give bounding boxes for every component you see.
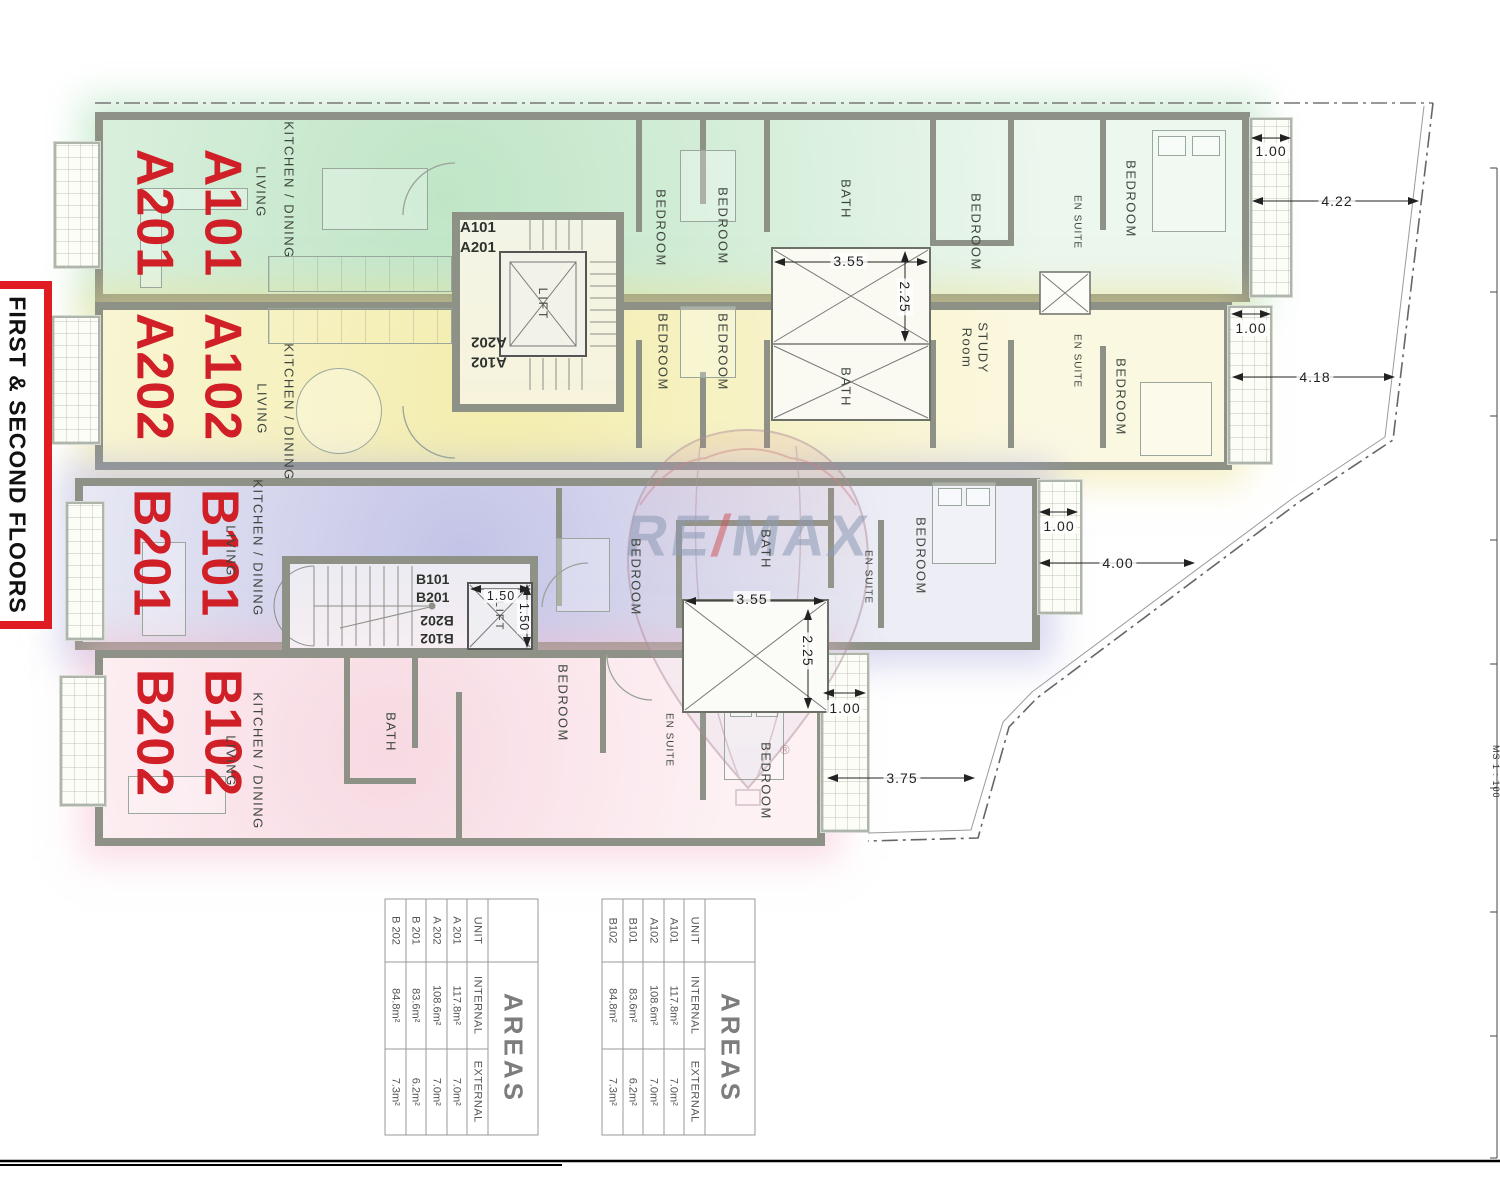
bed [1140,382,1212,456]
room-label: LIVING [224,735,239,787]
unit-b101: B101 [185,489,253,617]
col-header: INTERNAL [467,962,488,1049]
scale-note: MS 1 : 100 [1491,745,1500,799]
table-row: B101 83.6m² 6.2m² [623,899,644,1135]
room-label: EN SUITE [1072,195,1083,249]
room-label: BATH [759,529,774,569]
dim-yellow-balcony: 1.00 [1232,320,1269,336]
core-a-units-upper: A101 A201 [460,218,496,257]
cell-internal: 108.6m² [643,962,664,1049]
cell-external: 7.3m² [602,1049,623,1136]
areas-table-right: AREAS UNIT INTERNAL EXTERNAL A101 117.8m… [600,900,757,1137]
room-label: BATH [839,179,854,219]
table-row: A 201 117.8m² 7.0m² [447,899,468,1135]
kitchen-counter [268,256,452,292]
wall [344,778,416,784]
core-b-units-upper: B101 B201 [416,570,449,606]
floors-title: FIRST & SECOND FLOORS [4,296,31,613]
core-a-u1: A101 [460,218,496,238]
table-row: A102 108.6m² 7.0m² [643,899,664,1135]
unit-label-a101-a201: A101 A201 [120,149,255,277]
balcony-blue-right [1038,480,1082,614]
pillow [1192,136,1220,156]
wall [1100,120,1106,230]
dim-green-balcony: 1.00 [1252,143,1289,159]
room-label: LIVING [224,525,239,577]
wall [930,340,936,448]
core-b-l1: B102 [420,630,453,648]
room-label: LIVING [255,383,270,435]
study-line2: Room [958,322,974,374]
unit-a102: A102 [188,313,256,441]
core-b-u1: B101 [416,570,449,588]
cell-internal: 117.8m² [664,962,685,1049]
remax-watermark: RE/MAX [621,503,874,570]
room-label: BEDROOM [656,313,671,391]
room-label: BEDROOM [556,664,571,742]
lift-b-label: LIFT [493,601,505,632]
cell-unit: B 201 [406,899,427,962]
col-header: EXTERNAL [467,1049,488,1136]
wall [344,652,350,782]
remax-max: MAX [727,504,874,569]
wall [636,120,642,232]
room-label: EN SUITE [863,550,874,604]
pillow [730,700,752,717]
room-label: BEDROOM [759,742,774,820]
wall [412,652,418,748]
room-label: BEDROOM [969,193,984,271]
balcony-blue-left [66,502,104,640]
col-header: UNIT [467,899,488,962]
table-row: A101 117.8m² 7.0m² [664,899,685,1135]
room-label-study: STUDY Room [958,322,991,374]
room-label: BEDROOM [1124,160,1139,238]
table-row: B 202 84.8m² 7.3m² [385,899,406,1135]
cell-unit: A102 [643,899,664,962]
wall [700,372,706,448]
cell-external: 6.2m² [406,1049,427,1136]
wall [636,340,642,448]
col-header: UNIT [684,899,705,962]
cell-external: 7.0m² [426,1049,447,1136]
dining-table [322,168,428,230]
areas-table-left: AREAS UNIT INTERNAL EXTERNAL A 201 117.8… [383,900,540,1137]
room-label: BEDROOM [654,189,669,267]
cell-external: 7.0m² [447,1049,468,1136]
unit-b102: B102 [188,669,256,797]
cell-unit: A 202 [426,899,447,962]
unit-b202: B202 [120,669,188,797]
dim-pink-balcony: 1.00 [826,700,863,716]
balcony-yellow-left [52,316,100,444]
room-label: EN SUITE [664,713,675,767]
cell-internal: 117.8m² [447,962,468,1049]
balcony-pink-right [821,653,869,832]
wall [456,692,462,838]
wall [1008,120,1014,246]
dim-blue-balcony: 1.00 [1040,518,1077,534]
lift-a-label: LIFT [536,288,550,321]
cell-external: 6.2m² [623,1049,644,1136]
dim-shaft-a-width: 3.55 [830,253,867,269]
cell-unit: B101 [623,899,644,962]
wall [1008,340,1014,448]
floors-title-box: FIRST & SECOND FLOORS [0,281,52,629]
unit-b201: B201 [117,489,185,617]
wall [764,340,770,448]
pillow [966,488,990,506]
core-b-l2: B202 [420,612,453,630]
core-a-units-lower: A102 A202 [471,333,507,372]
table-row: B102 84.8m² 7.3m² [602,899,623,1135]
cell-external: 7.3m² [385,1049,406,1136]
cell-internal: 84.8m² [385,962,406,1049]
wall [930,120,936,246]
core-a-u2: A201 [460,238,496,258]
table-row: B 201 83.6m² 6.2m² [406,899,427,1135]
cell-internal: 83.6m² [623,962,644,1049]
pillow [938,488,962,506]
cell-external: 7.0m² [643,1049,664,1136]
room-label: EN SUITE [1072,334,1083,388]
dim-shaft-a-height: 2.25 [897,278,913,315]
room-label: BEDROOM [629,538,644,616]
room-label: BEDROOM [716,313,731,391]
wall [878,520,884,628]
cell-unit: B 202 [385,899,406,962]
cell-internal: 108.6m² [426,962,447,1049]
cell-internal: 83.6m² [406,962,427,1049]
room-label: KITCHEN / DINING [282,121,297,258]
bed [556,538,610,612]
unit-a201: A201 [120,149,188,277]
room-label: KITCHEN / DINING [251,479,266,616]
room-label: KITCHEN / DINING [282,343,297,480]
floor-plan-sheet: RE/MAX ® A101 A201 A102 A202 B101 B201 B… [0,0,1500,1200]
pillow [1158,136,1186,156]
registered-mark: ® [780,742,790,757]
unit-a101: A101 [188,149,256,277]
areas-title: AREAS [488,962,538,1135]
wall [600,655,606,753]
wall [1100,346,1106,448]
wall [764,120,770,232]
pillow [756,700,778,717]
areas-title: AREAS [705,962,755,1135]
unit-a202: A202 [120,313,188,441]
balcony-pink-left [60,676,106,806]
dim-lift-b-height: 1.50 [517,600,531,634]
edge-ruler [1490,168,1497,1158]
room-label: BEDROOM [914,517,929,595]
room-label: BEDROOM [716,187,731,265]
cell-internal: 84.8m² [602,962,623,1049]
room-label: BEDROOM [1114,358,1129,436]
dim-shaft-b-width: 3.55 [733,591,770,607]
room-label: LIVING [254,166,269,218]
core-b-u2: B201 [416,588,449,606]
kitchen-counter [268,308,452,344]
dim-blue-terrace: 4.00 [1099,555,1136,571]
table-row: A 202 108.6m² 7.0m² [426,899,447,1135]
cell-unit: A101 [664,899,685,962]
core-a-l2: A202 [471,333,507,353]
dim-lift-b-width: 1.50 [484,589,518,603]
study-line1: STUDY [974,322,990,374]
room-label: KITCHEN / DINING [251,692,266,829]
core-a-l1: A102 [471,352,507,372]
round-table [296,368,382,454]
cell-external: 7.0m² [664,1049,685,1136]
unit-label-a102-a202: A102 A202 [120,313,255,441]
dim-green-terrace: 4.22 [1318,193,1355,209]
dim-shaft-b-height: 2.25 [800,632,816,669]
col-header: EXTERNAL [684,1049,705,1136]
col-header: INTERNAL [684,962,705,1049]
cell-unit: B102 [602,899,623,962]
wall [700,692,706,800]
dim-yellow-terrace: 4.18 [1296,369,1333,385]
room-label: BATH [384,712,399,752]
cell-unit: A 201 [447,899,468,962]
room-label: BATH [839,367,854,407]
dim-pink-terrace: 3.75 [883,770,920,786]
core-b-units-lower: B102 B202 [420,612,453,648]
balcony-green-left [54,142,100,268]
